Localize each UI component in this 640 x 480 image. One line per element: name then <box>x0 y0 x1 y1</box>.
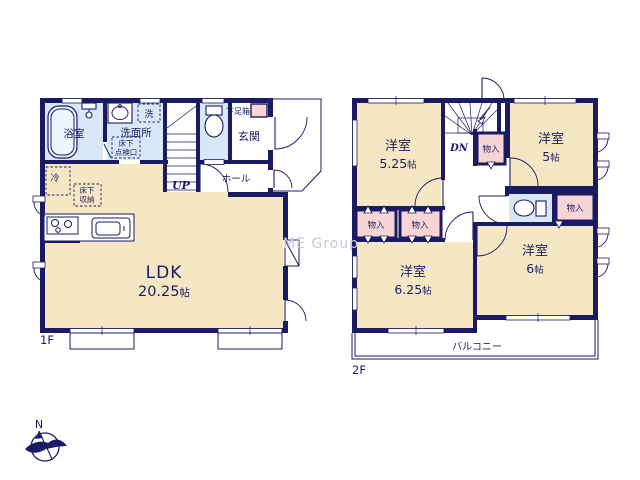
underfloor-access-label: 点検口 <box>115 147 138 157</box>
room-se-size-unit: 帖 <box>534 264 544 276</box>
room-se-label: 洋室 <box>522 243 548 259</box>
shoe-box-label: 下足箱 <box>226 106 250 116</box>
room-ne-size-num: 5 <box>542 149 550 164</box>
floor2-label: 2F <box>352 363 366 377</box>
shoe-box <box>251 104 267 117</box>
compass-icon: N <box>25 418 67 461</box>
room-sw-label: 洋室 <box>400 264 426 280</box>
floor-1f: UP <box>33 98 321 349</box>
closet-upper-label: 物入 <box>482 144 500 155</box>
ldk-size-num: 20.25 <box>138 284 180 300</box>
toilet-icon-2f <box>514 200 546 216</box>
watermark: ME Group <box>283 236 359 252</box>
balcony-label: バルコニー <box>452 341 502 353</box>
bath-label: 浴室 <box>64 127 85 140</box>
ldk-label: LDK <box>146 263 183 283</box>
room-nw-size-num: 5.25 <box>379 156 407 171</box>
stairs-down-label: DN <box>449 143 469 154</box>
room-nw-size-unit: 帖 <box>407 159 417 171</box>
ldk-size-unit: 帖 <box>180 286 191 299</box>
hall-label: ホール <box>222 174 251 185</box>
floorplan-canvas: UP <box>0 0 640 480</box>
compass-north-label: N <box>35 418 43 431</box>
room-nw-5-25 <box>357 103 441 206</box>
closet-west-2-label: 物入 <box>411 220 429 231</box>
room-ne-size-unit: 帖 <box>550 152 560 164</box>
toilet-icon-1f <box>205 106 223 137</box>
washbasin-icon <box>108 103 132 123</box>
floorplan-svg: UP <box>0 0 640 480</box>
room-nw-label: 洋室 <box>385 138 411 154</box>
ldk-size-label: 20.25帖 <box>138 284 191 300</box>
floor-2f: DN <box>352 78 609 377</box>
room-sw-size-unit: 帖 <box>422 285 432 297</box>
closet-west-1-label: 物入 <box>367 220 385 231</box>
washroom-label: 洗面所 <box>120 127 152 139</box>
room-se-size-num: 6 <box>526 261 534 276</box>
stairs-up-label: UP <box>172 179 191 192</box>
room-sw-size-num: 6.25 <box>394 282 422 297</box>
closet-east-label: 物入 <box>566 203 584 214</box>
compass-needle <box>25 439 67 452</box>
room-ne-label: 洋室 <box>538 131 564 147</box>
laundry-label: 洗 <box>144 108 153 120</box>
underfloor-access-label: 床下 <box>119 138 134 148</box>
underfloor-storage-label: 床下 <box>80 185 95 195</box>
underfloor-storage-label: 収納 <box>80 194 95 204</box>
floor1-label: 1F <box>40 333 54 347</box>
fridge-label: 冷 <box>50 172 59 184</box>
entrance-label: 玄関 <box>238 129 260 143</box>
kitchen-counter <box>44 214 134 241</box>
